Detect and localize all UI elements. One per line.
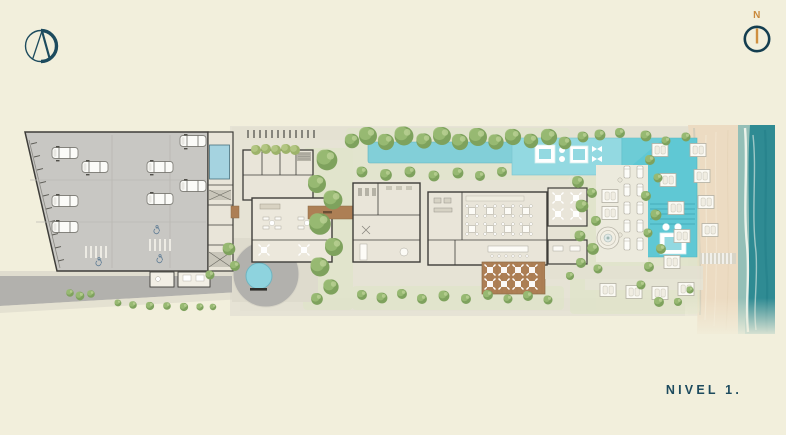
bar-counter (488, 246, 528, 252)
page: N NIVEL 1. (0, 0, 786, 435)
beach-fade (685, 298, 786, 340)
wellness-gym-building (353, 183, 420, 262)
lounge-pavilions (548, 188, 587, 264)
water-tank-pool (210, 145, 230, 179)
boardwalk (700, 253, 736, 264)
parking-garage (25, 132, 208, 271)
wood-dining-deck (482, 262, 545, 294)
reflecting-pond (246, 263, 272, 289)
guard-house (150, 271, 210, 287)
fountain (597, 227, 619, 249)
site-plan (0, 0, 786, 435)
restaurant-building (428, 192, 547, 265)
site-plan-illustration (0, 0, 786, 435)
